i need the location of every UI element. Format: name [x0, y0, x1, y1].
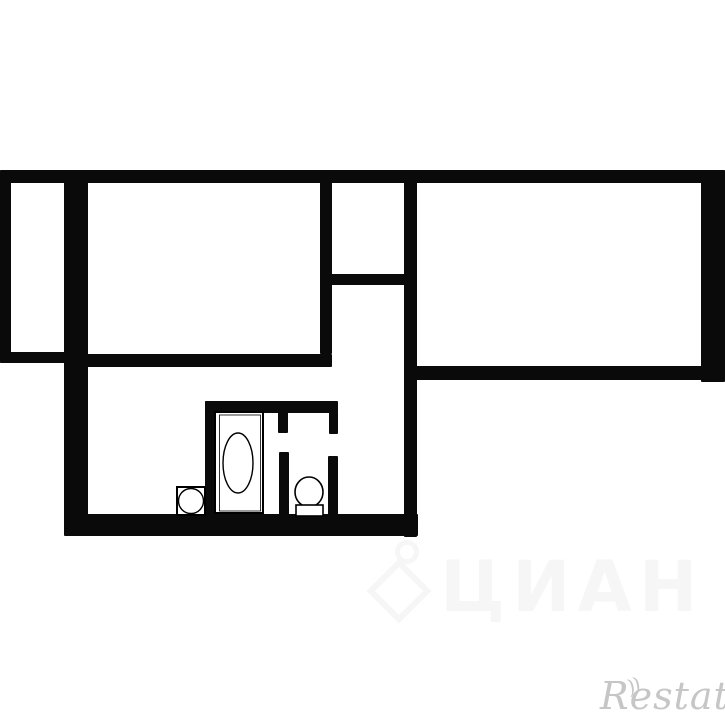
cian-house-icon: [366, 558, 431, 623]
toilet-bowl: [295, 477, 323, 507]
toilet-tank: [296, 505, 323, 516]
cian-watermark: ЦИАН: [362, 534, 672, 634]
floor-plan-image: ЦИАН Restate )): [0, 0, 725, 725]
cian-watermark-text: ЦИАН: [440, 546, 704, 628]
restate-watermark: Restate )): [600, 674, 725, 724]
sink-bowl: [179, 489, 204, 514]
bathtub-basin: [223, 433, 253, 493]
restate-watermark-text: Restate: [600, 674, 725, 718]
